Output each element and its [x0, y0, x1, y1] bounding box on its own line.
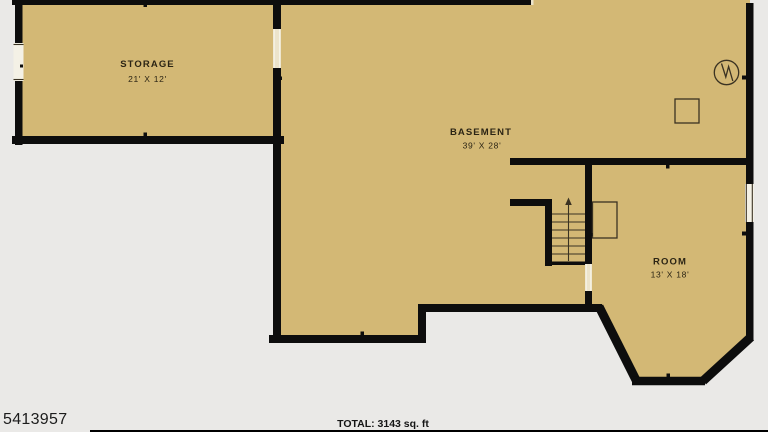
room-label: ROOM [653, 257, 687, 268]
total-area-label: TOTAL: 3143 sq. ft [300, 418, 466, 430]
floorplan-canvas: STORAGE 21' X 12' BASEMENT 39' X 28' ROO… [0, 0, 768, 432]
storage-room-floor [18, 2, 277, 141]
door-opening-storage [273, 29, 281, 68]
window-icon-right [745, 184, 754, 222]
listing-id: 5413957 [3, 411, 67, 429]
door-opening-room [585, 264, 592, 291]
floorplan: STORAGE 21' X 12' BASEMENT 39' X 28' ROO… [0, 0, 768, 432]
basement-room-label: BASEMENT [450, 127, 512, 138]
basement-room-dims: 39' X 28' [463, 141, 502, 151]
basement-floor [276, 0, 750, 383]
storage-room-dims: 21' X 12' [128, 74, 167, 84]
storage-room-label: STORAGE [120, 59, 175, 70]
window-icon-left [14, 43, 24, 81]
room-dims: 13' X 18' [651, 270, 690, 280]
